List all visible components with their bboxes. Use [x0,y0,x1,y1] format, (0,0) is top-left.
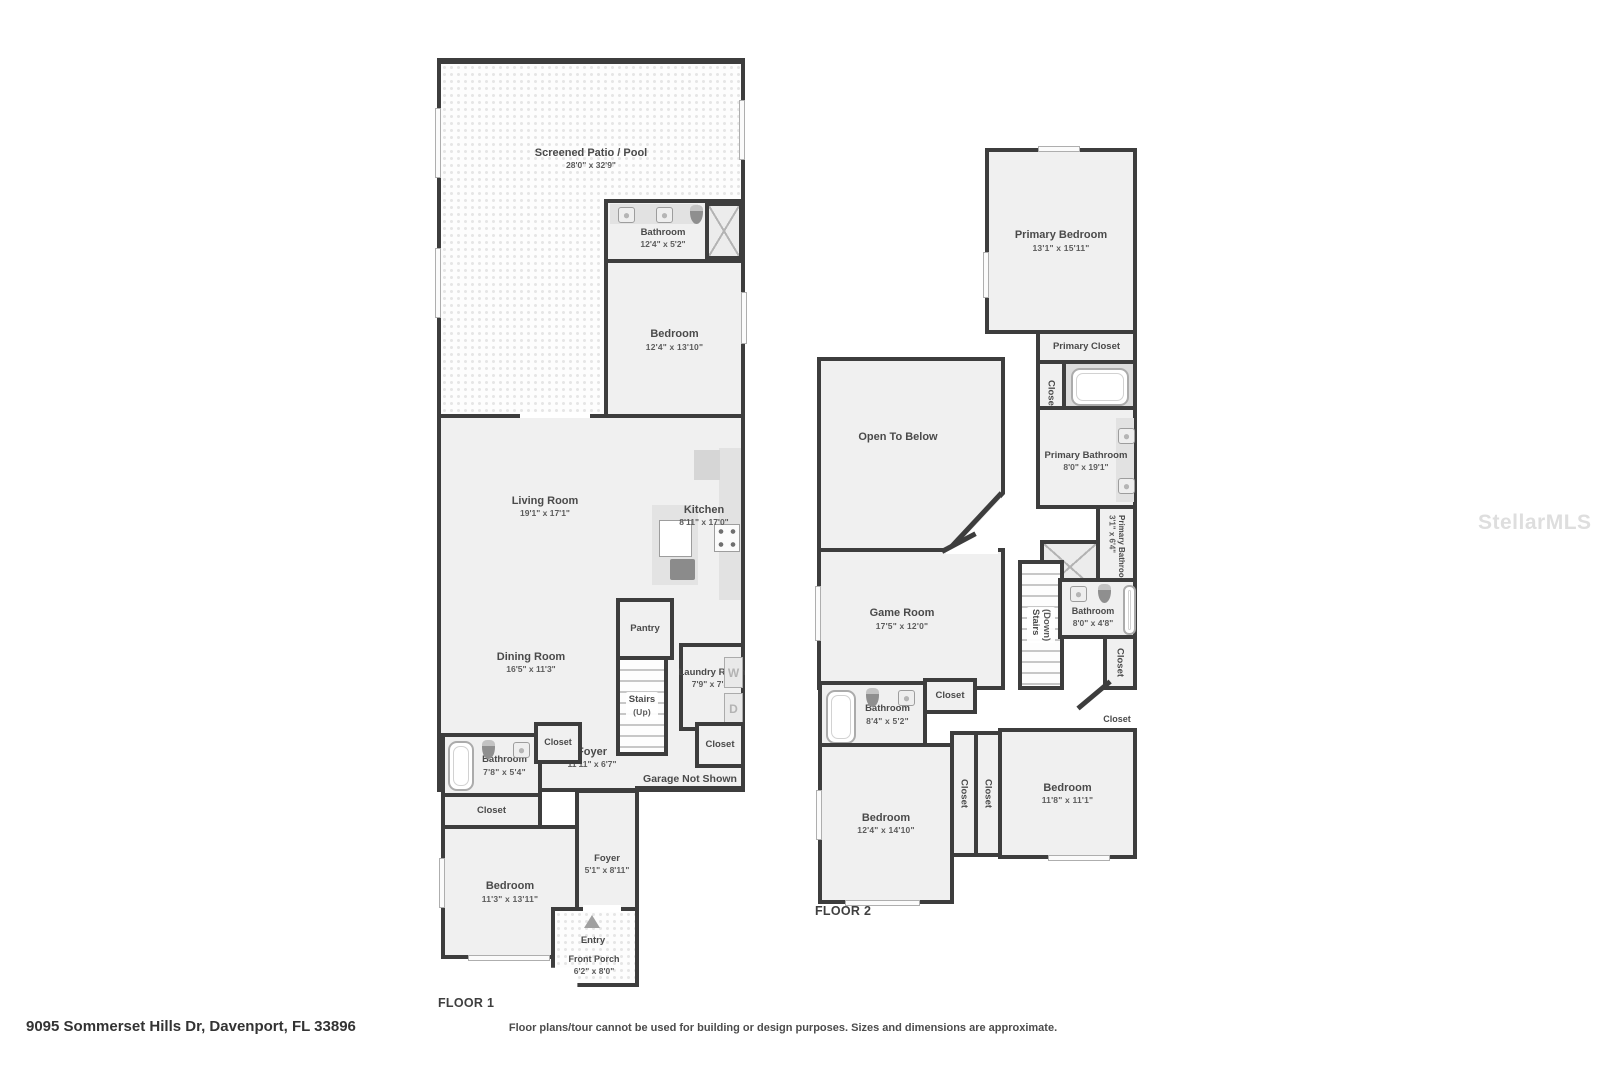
toilet-icon [1098,584,1111,603]
primary-bathroom-dims: 8'0" x 19'1" [1040,462,1132,473]
patio-label: Screened Patio / Pool 28'0" x 32'9" [441,146,741,171]
dining-room-label: Dining Room 16'5" x 11'3" [455,650,607,675]
closet-mid-label: Closet [1115,648,1126,677]
primary-bedroom-label: Primary Bedroom 13'1" x 15'11" [1015,228,1107,253]
watermark-text: StellarMLS [1478,511,1592,534]
bathtub-icon [1071,368,1129,406]
floor2-tag-text: FLOOR 2 [815,904,871,918]
window [815,586,821,641]
open-below-name: Open To Below [858,431,937,443]
entry-name: Entry [581,935,605,946]
room-open-below: Open To Below [817,357,1005,553]
kitchen-label: Kitchen 8'11" x 17'0" [666,503,742,528]
room-closet-bath2: Closet [923,678,977,714]
room-bathroom-mid: Bathroom 8'0" x 4'8" [1058,578,1137,639]
entry-label: Entry [565,933,621,947]
sink-icon [1070,586,1087,602]
bedroom-right2-label: Bedroom 11'8" x 11'1" [1042,781,1094,806]
stairs-up-name: Stairs [629,694,655,705]
floor1-tag: FLOOR 1 [438,996,494,1010]
bedroom-right-label: Bedroom 12'4" x 13'10" [646,327,703,352]
room-bedroom-right: Bedroom 12'4" x 13'10" [604,259,745,421]
closet-bath2-label: Closet [935,690,964,702]
room-closet-bed: Closet [441,793,542,829]
closet-hall-label: Closet [1092,712,1142,726]
bathroom-top-name: Bathroom [641,227,686,238]
game-room-label: Game Room 17'5" x 12'0" [870,606,935,631]
property-address: 9095 Sommerset Hills Dr, Davenport, FL 3… [26,1018,356,1035]
address-text: 9095 Sommerset Hills Dr, Davenport, FL 3… [26,1018,356,1035]
bedroom-right2-name: Bedroom [1043,782,1091,794]
room-primary-bedroom: Primary Bedroom 13'1" x 15'11" [985,148,1137,334]
room-closet-garage: Closet [695,722,745,768]
room-bathroom-top: Bathroom 12'4" x 5'2" [604,199,745,263]
primary-bedroom-dims: 13'1" x 15'11" [1015,243,1107,254]
foyer-entry-label: Foyer 5'1" x 8'11" [579,851,635,876]
stellar-mls-watermark: StellarMLS [1478,511,1592,535]
front-porch-name: Front Porch [569,954,620,964]
diagonal-wall [1076,680,1111,711]
wall-segment [635,786,745,791]
room-bedroom-right2: Bedroom 11'8" x 11'1" [998,728,1137,859]
primary-bathroom-name: Primary Bathroom [1045,450,1128,461]
primary-bathroom-small-name: Primary Bathroom [1117,515,1126,585]
washer-icon: W [724,657,743,688]
bedroom-front-name: Bedroom [486,880,534,892]
game-room-name: Game Room [870,607,935,619]
bathroom-mid-label: Bathroom 8'0" x 4'8" [1060,604,1126,629]
bedroom-left2-name: Bedroom [862,812,910,824]
primary-bathroom-label: Primary Bathroom 8'0" x 19'1" [1040,448,1132,473]
window [1038,146,1080,152]
disclaimer: Floor plans/tour cannot be used for buil… [470,1022,1096,1034]
pantry-label: Pantry [630,623,660,635]
front-porch-dims: 6'2" x 8'0" [554,966,634,977]
primary-bathroom-small-dims: 3'1" x 6'4" [1108,515,1117,553]
dining-room-dims: 16'5" x 11'3" [455,664,607,675]
washer-letter: W [728,666,739,680]
patio-name: Screened Patio / Pool [535,147,647,159]
kitchen-dims: 8'11" x 17'0" [666,517,742,528]
closet-garage-label: Closet [705,739,734,751]
room-tub-alcove [1062,360,1137,412]
floor2-tag: FLOOR 2 [815,904,871,918]
living-room-name: Living Room [512,495,579,507]
bathtub-icon [448,741,474,791]
closet-bed-label: Closet [477,805,506,817]
bedroom-right-name: Bedroom [650,328,698,340]
window [468,955,550,961]
window [816,790,822,840]
stairs-down-dims: (Down) [1041,609,1052,641]
bathtub-icon [826,690,856,744]
door-gap [520,412,590,418]
bathroom-low-dims: 8'4" x 5'2" [865,716,910,727]
sink-icon [898,690,915,706]
bathroom-top-dims: 12'4" x 5'2" [618,239,708,250]
garage-note-text: Garage Not Shown [643,773,737,785]
living-room-label: Living Room 19'1" x 17'1" [470,494,620,519]
living-room-dims: 19'1" x 17'1" [470,508,620,519]
window [1048,855,1110,861]
foyer-entry-dims: 5'1" x 8'11" [579,865,635,876]
disclaimer-text: Floor plans/tour cannot be used for buil… [509,1022,1057,1034]
window [739,100,745,160]
primary-closet-label: Primary Closet [1053,341,1120,353]
window [439,858,445,908]
fridge-icon [694,450,720,480]
dryer-letter: D [729,702,738,716]
dryer-icon: D [724,693,743,724]
kitchen-name: Kitchen [684,504,724,516]
room-foyer-entry: Foyer 5'1" x 8'11" [575,789,639,911]
foyer-entry-name: Foyer [594,853,620,864]
dining-room-name: Dining Room [497,651,565,663]
patio-dims: 28'0" x 32'9" [441,160,741,171]
bedroom-left2-dims: 12'4" x 14'10" [857,825,914,836]
room-bathroom-low: Bathroom 8'4" x 5'2" [818,681,927,747]
entry-arrow-icon [584,915,600,928]
primary-bathroom-small-label: Primary Bathroom 3'1" x 6'4" [1107,515,1126,585]
shower-icon [705,202,743,260]
sink-icon [1118,478,1135,494]
open-below-label: Open To Below [858,430,937,444]
room-bathroom-left: Bathroom 7'8" x 5'4" [441,733,542,797]
garage-note: Garage Not Shown [626,773,754,787]
bathroom-left-dims: 7'8" x 5'4" [482,767,527,778]
floorplan-canvas: Screened Patio / Pool 28'0" x 32'9" Bath… [0,0,1600,1066]
room-pantry: Pantry [616,598,674,660]
closet-b-label: Closet [983,779,994,808]
stairs-up: Stairs (Up) [616,656,668,756]
sink-icon [618,207,635,223]
dishwasher-icon [670,559,695,580]
stairs-down-name: Stairs [1030,609,1041,635]
closet-a-label: Closet [959,779,970,808]
room-primary-closet: Primary Closet [1036,330,1137,364]
door-gap [583,905,621,912]
sink-icon [513,742,530,758]
bathroom-mid-name: Bathroom [1072,606,1115,616]
window [983,252,989,298]
game-room-dims: 17'5" x 12'0" [870,621,935,632]
primary-bedroom-name: Primary Bedroom [1015,229,1107,241]
stairs-up-dims: (Up) [629,707,655,718]
bathroom-top-label: Bathroom 12'4" x 5'2" [618,225,708,250]
window [435,248,441,318]
room-laundry: Laundry Room 7'9" x 7'5" W D [679,643,745,731]
floor1-tag-text: FLOOR 1 [438,996,494,1010]
closet-hall-name: Closet [1103,714,1131,724]
window [435,108,441,178]
stairs-down-label: Stairs (Down) [1027,607,1055,643]
bathroom-mid-dims: 8'0" x 4'8" [1060,618,1126,629]
room-primary-bathroom: Primary Bathroom 8'0" x 19'1" [1036,406,1137,509]
bedroom-right2-dims: 11'8" x 11'1" [1042,795,1094,806]
sink-icon [1118,428,1135,444]
window [741,292,747,344]
bedroom-front-dims: 11'3" x 13'11" [482,894,539,905]
sink-icon [656,207,673,223]
bedroom-front-label: Bedroom 11'3" x 13'11" [482,879,539,904]
room-bedroom-left2: Bedroom 12'4" x 14'10" [818,743,954,904]
room-closet-bath: Closet [534,722,582,764]
bedroom-left2-label: Bedroom 12'4" x 14'10" [857,811,914,836]
front-porch-label: Front Porch 6'2" x 8'0" [554,952,634,977]
stairs-up-label: Stairs (Up) [626,692,658,719]
room-game-room: Game Room 17'5" x 12'0" [817,548,1005,690]
bedroom-right-dims: 12'4" x 13'10" [646,342,703,353]
toilet-icon [690,205,703,224]
closet-bath-label: Closet [544,737,572,749]
